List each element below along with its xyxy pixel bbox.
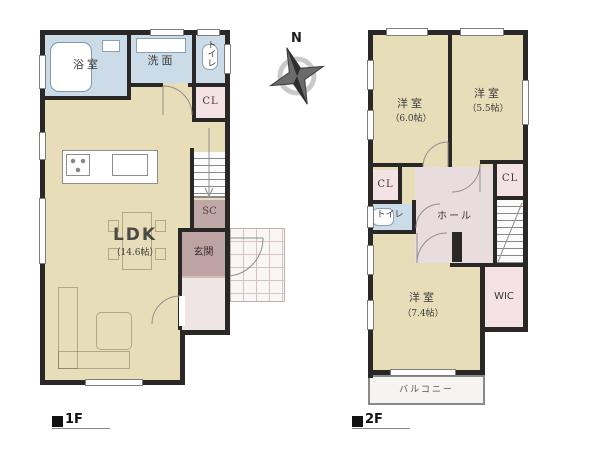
bedroom-b-label: 洋室 [455,88,521,101]
bedroom-b-size: （5.5帖） [455,104,521,114]
living-table-outline [96,312,132,350]
floor2-marker-square [352,416,363,427]
window [460,28,504,36]
bedroom-a-size: （6.0帖） [378,114,444,124]
washroom-label: 洗面 [131,55,192,68]
window [367,60,374,90]
compass-icon [260,38,333,114]
window [522,80,529,125]
ldk-size: （14.6帖） [85,248,185,258]
bedroom-c-label: 洋室 [390,292,456,305]
floor1-marker-square [52,416,63,427]
floor2-marker-label: 2F [365,412,383,427]
closet-2f-left-label: CL [373,179,398,191]
bath-label: 浴室 [56,59,118,72]
window [224,44,231,74]
hall-label: ホール [420,211,490,223]
bedroom-c-size: （7.4帖） [390,309,456,319]
window [39,198,46,264]
window [197,29,220,36]
window [39,132,46,160]
door-opening [179,296,185,326]
toilet-label-1f: トイレ [205,40,215,67]
window [150,29,184,36]
stove-icon [66,154,90,176]
closet-2f-right-label: CL [497,173,523,185]
bedroom-a-label: 洋室 [378,98,444,111]
window [39,55,46,89]
stairs-2f [497,200,523,263]
wic-label: WIC [485,291,523,303]
closet-label-1f: CL [196,96,225,108]
bath-stool-icon [102,40,120,52]
entrance-label: 玄関 [182,247,225,259]
vanity-sink-icon [136,38,186,53]
sofa-outline-2 [58,351,130,369]
shoe-closet-label: SC [194,206,225,218]
floor1-marker-label: 1F [65,412,83,427]
window [367,245,374,275]
window [85,379,143,386]
window [367,300,374,330]
entrance-porch [230,228,285,302]
floor-plan-canvas: 浴室 洗面 トイレ CL LDK （14.6帖） SC 玄関 1F [0,0,600,450]
ldk-label: LDK [85,226,185,246]
entrance-hall [182,278,225,330]
floor2-marker: 2F [352,412,410,429]
kitchen-sink-icon [112,154,148,176]
floor1-marker: 1F [52,412,110,429]
balcony-label: バルコニー [375,385,478,395]
stairs-1f [194,152,225,196]
window [386,28,428,36]
compass-north-label: N [291,31,302,46]
balcony-sliding-door [390,369,456,376]
window [367,110,374,140]
toilet-label-2f: トイレ [368,210,412,220]
